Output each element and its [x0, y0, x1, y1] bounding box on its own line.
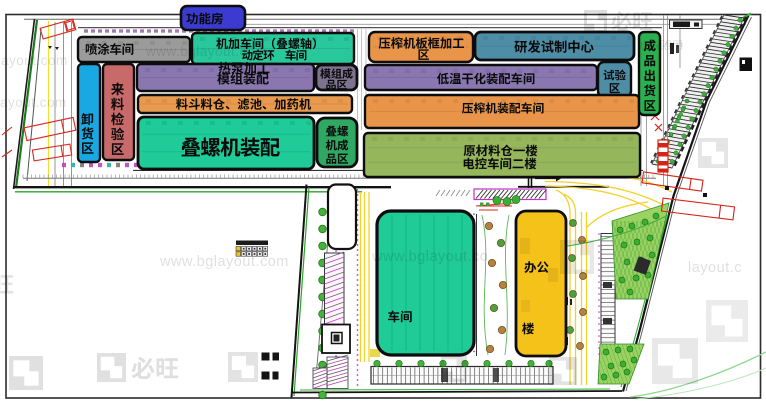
svg-text:layout.c: layout.c [688, 260, 742, 276]
svg-text:www.bglayout.co: www.bglayout.co [371, 249, 488, 265]
svg-text:ayout.com: ayout.com [0, 95, 67, 110]
svg-text:.com: .com [655, 35, 683, 50]
svg-text:www.bglayout.com: www.bglayout.com [159, 254, 289, 270]
svg-text:www.bglayout.com: www.bglayout.com [145, 44, 267, 59]
svg-text:ayout.com: ayout.com [1, 53, 68, 68]
